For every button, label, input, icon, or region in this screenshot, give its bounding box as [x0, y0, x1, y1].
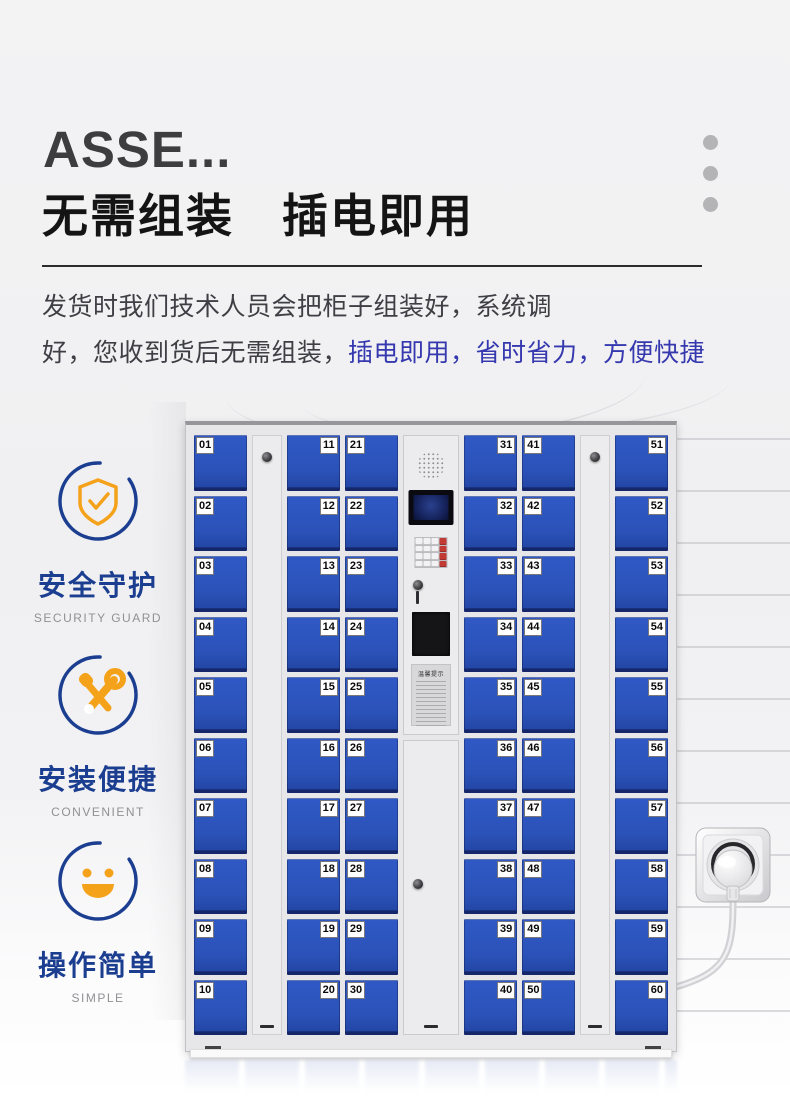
control-lower-door[interactable]	[403, 740, 459, 1035]
locker-door-04[interactable]: 04	[194, 617, 247, 673]
door-number-label: 06	[196, 740, 214, 757]
keypad-key[interactable]	[440, 538, 447, 545]
locker-door-34[interactable]: 34	[464, 617, 517, 673]
locker-door-01[interactable]: 01	[194, 435, 247, 491]
locker-door-15[interactable]: 15	[287, 677, 340, 733]
locker-door-18[interactable]: 18	[287, 859, 340, 915]
dot	[703, 197, 718, 212]
keypad-key[interactable]	[416, 538, 423, 545]
door-number-label: 04	[196, 619, 214, 636]
door-number-label: 22	[347, 498, 365, 515]
keyhole-icon[interactable]	[262, 452, 272, 462]
feature-label-en: CONVENIENT	[18, 805, 178, 819]
locker-door-08[interactable]: 08	[194, 859, 247, 915]
locker-door-45[interactable]: 45	[522, 677, 575, 733]
instruction-sticker: 温馨提示	[411, 664, 451, 726]
locker-door-10[interactable]: 10	[194, 980, 247, 1036]
door-number-label: 40	[497, 982, 515, 999]
locker-door-43[interactable]: 43	[522, 556, 575, 612]
door-number-label: 37	[497, 800, 515, 817]
door-number-label: 58	[648, 861, 666, 878]
locker-door-46[interactable]: 46	[522, 738, 575, 794]
locker-door-58[interactable]: 58	[615, 859, 668, 915]
locker-door-column: 01020304050607080910	[194, 435, 247, 1035]
description-text: 发货时我们技术人员会把柜子组装好，系统调 好，您收到货后无需组装，插电即用，省时…	[42, 284, 752, 376]
door-number-label: 44	[524, 619, 542, 636]
tools-icon	[56, 652, 140, 738]
locker-door-22[interactable]: 22	[345, 496, 398, 552]
door-number-label: 09	[196, 921, 214, 938]
door-number-label: 19	[320, 921, 338, 938]
door-number-label: 18	[320, 861, 338, 878]
door-number-label: 54	[648, 619, 666, 636]
locker-door-53[interactable]: 53	[615, 556, 668, 612]
page-title-cn: 无需组装 插电即用	[42, 180, 474, 246]
door-number-label: 55	[648, 679, 666, 696]
door-number-label: 29	[347, 921, 365, 938]
locker-door-32[interactable]: 32	[464, 496, 517, 552]
keypad-key[interactable]	[424, 538, 431, 545]
locker-door-33[interactable]: 33	[464, 556, 517, 612]
locker-door-56[interactable]: 56	[615, 738, 668, 794]
door-number-label: 48	[524, 861, 542, 878]
locker-door-31[interactable]: 31	[464, 435, 517, 491]
locker-door-03[interactable]: 03	[194, 556, 247, 612]
feature-convenient: 安装便捷 CONVENIENT	[18, 652, 178, 819]
door-number-label: 59	[648, 921, 666, 938]
door-number-label: 60	[648, 982, 666, 999]
door-number-label: 33	[497, 558, 515, 575]
keypad-key[interactable]	[424, 546, 431, 553]
door-number-label: 49	[524, 921, 542, 938]
locker-door-44[interactable]: 44	[522, 617, 575, 673]
divider-line	[42, 265, 702, 267]
door-number-label: 10	[196, 982, 214, 999]
locker-door-column: 41424344454647484950	[522, 435, 575, 1035]
keypad-key[interactable]	[440, 561, 447, 568]
door-number-label: 27	[347, 800, 365, 817]
keypad-key[interactable]	[424, 553, 431, 560]
locker-door-51[interactable]: 51	[615, 435, 668, 491]
door-number-label: 17	[320, 800, 338, 817]
locker-door-28[interactable]: 28	[345, 859, 398, 915]
shield-check-icon	[56, 458, 140, 544]
locker-door-19[interactable]: 19	[287, 919, 340, 975]
locker-cabinet: 0102030405060708091011121314151617181920…	[185, 421, 677, 1052]
door-number-label: 05	[196, 679, 214, 696]
locker-door-11[interactable]: 11	[287, 435, 340, 491]
keypad-key[interactable]	[432, 546, 439, 553]
control-column: 温馨提示	[403, 435, 459, 1035]
door-number-label: 39	[497, 921, 515, 938]
keypad-key[interactable]	[424, 561, 431, 568]
feature-label-en: SECURITY GUARD	[18, 611, 178, 625]
door-number-label: 35	[497, 679, 515, 696]
description-line2: 好，您收到货后无需组装，	[42, 339, 348, 367]
keypad-key[interactable]	[416, 553, 423, 560]
locker-door-column: 31323334353637383940	[464, 435, 517, 1035]
locker-door-42[interactable]: 42	[522, 496, 575, 552]
keypad-key[interactable]	[432, 553, 439, 560]
locker-door-06[interactable]: 06	[194, 738, 247, 794]
locker-door-21[interactable]: 21	[345, 435, 398, 491]
locker-door-47[interactable]: 47	[522, 798, 575, 854]
door-number-label: 03	[196, 558, 214, 575]
sticker-text-lines	[416, 681, 446, 727]
locker-door-26[interactable]: 26	[345, 738, 398, 794]
locker-door-59[interactable]: 59	[615, 919, 668, 975]
locker-door-55[interactable]: 55	[615, 677, 668, 733]
keypad-key[interactable]	[440, 546, 447, 553]
door-number-label: 53	[648, 558, 666, 575]
door-number-label: 14	[320, 619, 338, 636]
description-line1: 发货时我们技术人员会把柜子组装好，系统调	[42, 293, 552, 321]
dot	[703, 166, 718, 181]
locker-door-50[interactable]: 50	[522, 980, 575, 1036]
description-highlight: 插电即用，省时省力，方便快捷	[348, 339, 705, 367]
locker-door-05[interactable]: 05	[194, 677, 247, 733]
locker-door-09[interactable]: 09	[194, 919, 247, 975]
locker-door-37[interactable]: 37	[464, 798, 517, 854]
vent-slot	[424, 1025, 438, 1028]
sticker-title: 温馨提示	[416, 669, 446, 678]
door-number-label: 16	[320, 740, 338, 757]
door-number-label: 23	[347, 558, 365, 575]
decorative-dots	[703, 135, 719, 228]
locker-door-20[interactable]: 20	[287, 980, 340, 1036]
door-number-label: 50	[524, 982, 542, 999]
door-number-label: 13	[320, 558, 338, 575]
locker-door-16[interactable]: 16	[287, 738, 340, 794]
door-number-label: 11	[320, 437, 338, 454]
door-number-label: 31	[497, 437, 515, 454]
locker-door-column: 21222324252627282930	[345, 435, 398, 1035]
door-number-label: 01	[196, 437, 214, 454]
lcd-display	[414, 495, 449, 520]
keypad-key[interactable]	[416, 561, 423, 568]
keypad-key[interactable]	[416, 546, 423, 553]
locker-door-39[interactable]: 39	[464, 919, 517, 975]
door-number-label: 15	[320, 679, 338, 696]
cabinet-plinth	[190, 1049, 672, 1058]
keyhole-icon[interactable]	[590, 452, 600, 462]
door-number-label: 38	[497, 861, 515, 878]
feature-label-cn: 安装便捷	[18, 758, 178, 798]
control-keyhole[interactable]	[413, 580, 423, 604]
feature-label-en: SIMPLE	[18, 991, 178, 1005]
display-screen	[409, 490, 454, 525]
locker-door-41[interactable]: 41	[522, 435, 575, 491]
door-number-label: 20	[320, 982, 338, 999]
locker-door-14[interactable]: 14	[287, 617, 340, 673]
keypad-key[interactable]	[432, 561, 439, 568]
keypad[interactable]	[415, 537, 448, 568]
cabinet-columns: 0102030405060708091011121314151617181920…	[194, 435, 668, 1035]
door-number-label: 21	[347, 437, 365, 454]
door-number-label: 08	[196, 861, 214, 878]
locker-door-07[interactable]: 07	[194, 798, 247, 854]
scanner-window	[412, 612, 450, 656]
locker-door-13[interactable]: 13	[287, 556, 340, 612]
locker-door-column: 51525354555657585960	[615, 435, 668, 1035]
locker-door-40[interactable]: 40	[464, 980, 517, 1036]
locker-door-49[interactable]: 49	[522, 919, 575, 975]
door-number-label: 42	[524, 498, 542, 515]
locker-door-23[interactable]: 23	[345, 556, 398, 612]
side-lock-panel	[252, 435, 282, 1035]
door-number-label: 56	[648, 740, 666, 757]
door-number-label: 45	[524, 679, 542, 696]
locker-door-38[interactable]: 38	[464, 859, 517, 915]
key-icon	[416, 591, 419, 604]
floor-reflection	[185, 1060, 677, 1097]
door-number-label: 51	[648, 437, 666, 454]
door-number-label: 02	[196, 498, 214, 515]
door-number-label: 32	[497, 498, 515, 515]
keyhole-icon[interactable]	[413, 879, 423, 889]
door-number-label: 43	[524, 558, 542, 575]
feature-simple: 操作简单 SIMPLE	[18, 838, 178, 1005]
locker-door-36[interactable]: 36	[464, 738, 517, 794]
feature-security: 安全守护 SECURITY GUARD	[18, 458, 178, 625]
power-plug	[714, 850, 752, 888]
door-number-label: 25	[347, 679, 365, 696]
speaker-grille-icon	[418, 452, 445, 479]
feature-label-cn: 操作简单	[18, 944, 178, 984]
page-title-en: ASSE...	[43, 120, 231, 179]
smiley-icon	[56, 838, 140, 924]
locker-door-12[interactable]: 12	[287, 496, 340, 552]
door-number-label: 36	[497, 740, 515, 757]
door-number-label: 34	[497, 619, 515, 636]
door-number-label: 41	[524, 437, 542, 454]
locker-door-57[interactable]: 57	[615, 798, 668, 854]
door-number-label: 24	[347, 619, 365, 636]
locker-door-27[interactable]: 27	[345, 798, 398, 854]
door-number-label: 07	[196, 800, 214, 817]
door-number-label: 46	[524, 740, 542, 757]
keypad-key[interactable]	[440, 553, 447, 560]
locker-door-48[interactable]: 48	[522, 859, 575, 915]
locker-door-column: 11121314151617181920	[287, 435, 340, 1035]
locker-door-02[interactable]: 02	[194, 496, 247, 552]
locker-door-52[interactable]: 52	[615, 496, 668, 552]
side-lock-panel	[580, 435, 610, 1035]
door-number-label: 57	[648, 800, 666, 817]
vent-slot	[588, 1025, 602, 1028]
door-number-label: 47	[524, 800, 542, 817]
keyhole-icon[interactable]	[413, 580, 423, 590]
locker-door-60[interactable]: 60	[615, 980, 668, 1036]
control-panel: 温馨提示	[403, 435, 459, 735]
locker-door-30[interactable]: 30	[345, 980, 398, 1036]
door-number-label: 28	[347, 861, 365, 878]
dot	[703, 135, 718, 150]
keypad-key[interactable]	[432, 538, 439, 545]
locker-door-35[interactable]: 35	[464, 677, 517, 733]
door-number-label: 52	[648, 498, 666, 515]
door-number-label: 12	[320, 498, 338, 515]
feature-label-cn: 安全守护	[18, 564, 178, 604]
locker-door-24[interactable]: 24	[345, 617, 398, 673]
locker-door-25[interactable]: 25	[345, 677, 398, 733]
door-number-label: 26	[347, 740, 365, 757]
locker-door-54[interactable]: 54	[615, 617, 668, 673]
vent-slot	[260, 1025, 274, 1028]
locker-door-29[interactable]: 29	[345, 919, 398, 975]
locker-door-17[interactable]: 17	[287, 798, 340, 854]
door-number-label: 30	[347, 982, 365, 999]
